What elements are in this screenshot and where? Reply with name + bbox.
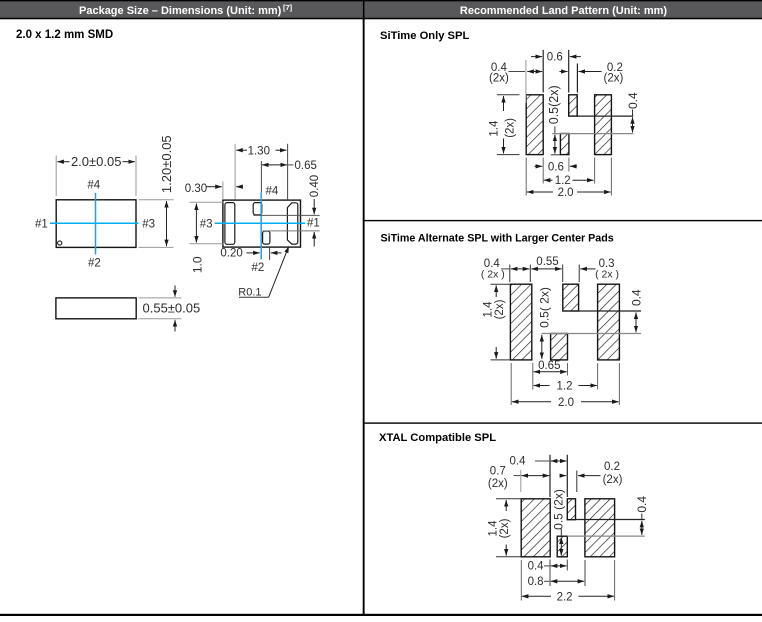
svg-text:0.5(2x): 0.5(2x)	[547, 85, 561, 124]
svg-text:(2x): (2x)	[494, 299, 506, 319]
svg-text:Package Size – Dimensions (Uni: Package Size – Dimensions (Unit: mm)	[79, 5, 282, 17]
svg-text:0.65: 0.65	[538, 360, 560, 372]
svg-text:2.2: 2.2	[557, 591, 573, 603]
svg-text:#3: #3	[142, 219, 155, 231]
svg-text:0.55±0.05: 0.55±0.05	[143, 301, 201, 316]
svg-text:(2x): (2x)	[489, 73, 509, 85]
svg-text:0.40: 0.40	[309, 175, 321, 197]
svg-text:0.5 (2x): 0.5 (2x)	[552, 489, 566, 530]
svg-text:#2: #2	[252, 262, 265, 274]
svg-text:#4: #4	[266, 186, 279, 198]
svg-text:#2: #2	[88, 258, 101, 270]
svg-text:1.30: 1.30	[248, 145, 270, 157]
svg-text:#4: #4	[87, 180, 100, 192]
svg-text:Recommended Land Pattern (Unit: Recommended Land Pattern (Unit: mm)	[460, 5, 668, 17]
svg-text:0.6: 0.6	[547, 52, 563, 64]
svg-text:0.55: 0.55	[536, 256, 558, 268]
svg-text:0.4: 0.4	[510, 456, 527, 468]
svg-text:1.0: 1.0	[191, 256, 205, 273]
svg-text:0.4: 0.4	[635, 496, 649, 513]
svg-text:2.0: 2.0	[558, 187, 574, 199]
svg-text:( 2x ): ( 2x )	[481, 269, 505, 281]
svg-text:0.65: 0.65	[295, 160, 317, 172]
svg-text:#3: #3	[200, 219, 213, 231]
svg-text:R0.1: R0.1	[238, 286, 261, 298]
svg-text:( 2x ): ( 2x )	[595, 269, 619, 281]
svg-text:1.2: 1.2	[555, 175, 571, 187]
svg-text:(2x): (2x)	[603, 73, 623, 85]
svg-text:0.2: 0.2	[604, 461, 620, 473]
svg-text:1.4: 1.4	[488, 520, 500, 537]
svg-text:0.30: 0.30	[185, 183, 207, 195]
svg-text:2.0±0.05: 2.0±0.05	[71, 154, 122, 169]
svg-text:1.20±0.05: 1.20±0.05	[159, 135, 174, 193]
svg-text:SiTime Alternate SPL with Larg: SiTime Alternate SPL with Larger Center …	[381, 233, 614, 245]
svg-text:(2x): (2x)	[603, 474, 623, 486]
svg-text:XTAL Compatible SPL: XTAL Compatible SPL	[379, 432, 496, 444]
svg-text:0.6: 0.6	[548, 161, 564, 173]
svg-text:1.4: 1.4	[483, 301, 495, 318]
svg-text:[7]: [7]	[283, 3, 293, 12]
svg-text:(2x): (2x)	[499, 518, 511, 538]
svg-text:0.7: 0.7	[490, 465, 506, 477]
svg-text:1.4: 1.4	[488, 120, 500, 137]
svg-text:2.0: 2.0	[558, 397, 574, 409]
svg-text:2.0 x 1.2 mm SMD: 2.0 x 1.2 mm SMD	[16, 29, 113, 41]
svg-text:0.4: 0.4	[528, 561, 545, 573]
svg-text:(2x): (2x)	[488, 478, 508, 490]
svg-text:0.4: 0.4	[626, 92, 640, 109]
svg-text:#1: #1	[35, 219, 48, 231]
svg-text:0.4: 0.4	[630, 289, 644, 306]
svg-text:#1: #1	[307, 217, 320, 229]
svg-text:(2x): (2x)	[505, 118, 517, 138]
svg-text:0.20: 0.20	[220, 247, 242, 259]
svg-text:0.5( 2x): 0.5( 2x)	[537, 287, 551, 328]
svg-text:1.2: 1.2	[557, 381, 573, 393]
svg-text:0.8: 0.8	[528, 576, 544, 588]
svg-text:SiTime Only SPL: SiTime Only SPL	[380, 30, 469, 42]
